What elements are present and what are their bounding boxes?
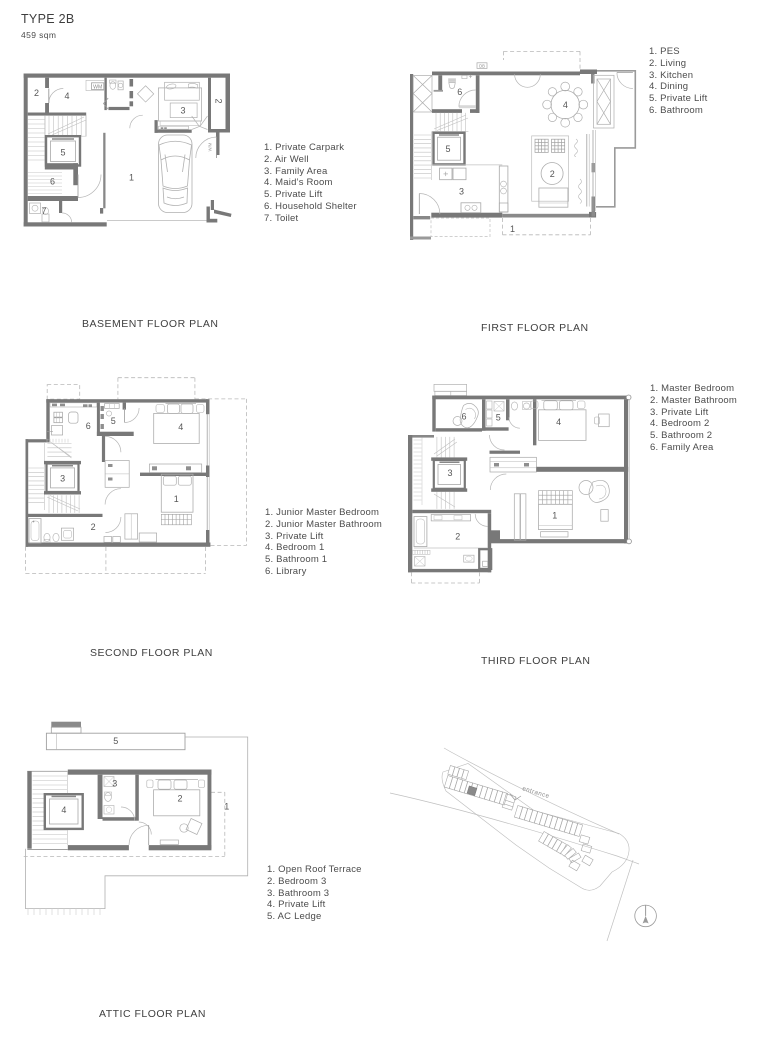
svg-text:2: 2 — [91, 522, 96, 532]
svg-text:3: 3 — [459, 187, 464, 197]
svg-text:6: 6 — [461, 412, 466, 422]
svg-text:3: 3 — [447, 468, 452, 478]
svg-text:3: 3 — [60, 474, 65, 484]
svg-text:4: 4 — [563, 100, 568, 110]
svg-text:1: 1 — [129, 173, 134, 183]
svg-text:WM: WM — [93, 84, 102, 90]
svg-text:2: 2 — [177, 794, 182, 804]
svg-text:4: 4 — [64, 91, 69, 101]
svg-text:6: 6 — [86, 421, 91, 431]
svg-text:entrance: entrance — [521, 785, 550, 800]
svg-text:1: 1 — [224, 802, 229, 812]
svg-text:1: 1 — [510, 224, 515, 234]
svg-text:4: 4 — [178, 422, 183, 432]
svg-text:5: 5 — [60, 148, 65, 158]
svg-text:DB: DB — [479, 63, 485, 68]
svg-text:4: 4 — [556, 417, 561, 427]
svg-text:3: 3 — [112, 779, 117, 789]
svg-text:5: 5 — [445, 144, 450, 154]
svg-text:5: 5 — [111, 416, 116, 426]
svg-text:1: 1 — [552, 511, 557, 521]
svg-text:2: 2 — [214, 98, 224, 103]
svg-text:1: 1 — [174, 494, 179, 504]
svg-text:5: 5 — [496, 413, 501, 423]
svg-text:3: 3 — [180, 106, 185, 116]
svg-text:4: 4 — [61, 805, 66, 815]
svg-text:W/M: W/M — [208, 142, 213, 151]
svg-text:2: 2 — [455, 532, 460, 542]
svg-text:5: 5 — [113, 736, 118, 746]
svg-text:6: 6 — [457, 87, 462, 97]
svg-text:6: 6 — [50, 177, 55, 187]
svg-text:2: 2 — [34, 88, 39, 98]
svg-text:7: 7 — [41, 206, 46, 216]
svg-text:2: 2 — [550, 169, 555, 179]
